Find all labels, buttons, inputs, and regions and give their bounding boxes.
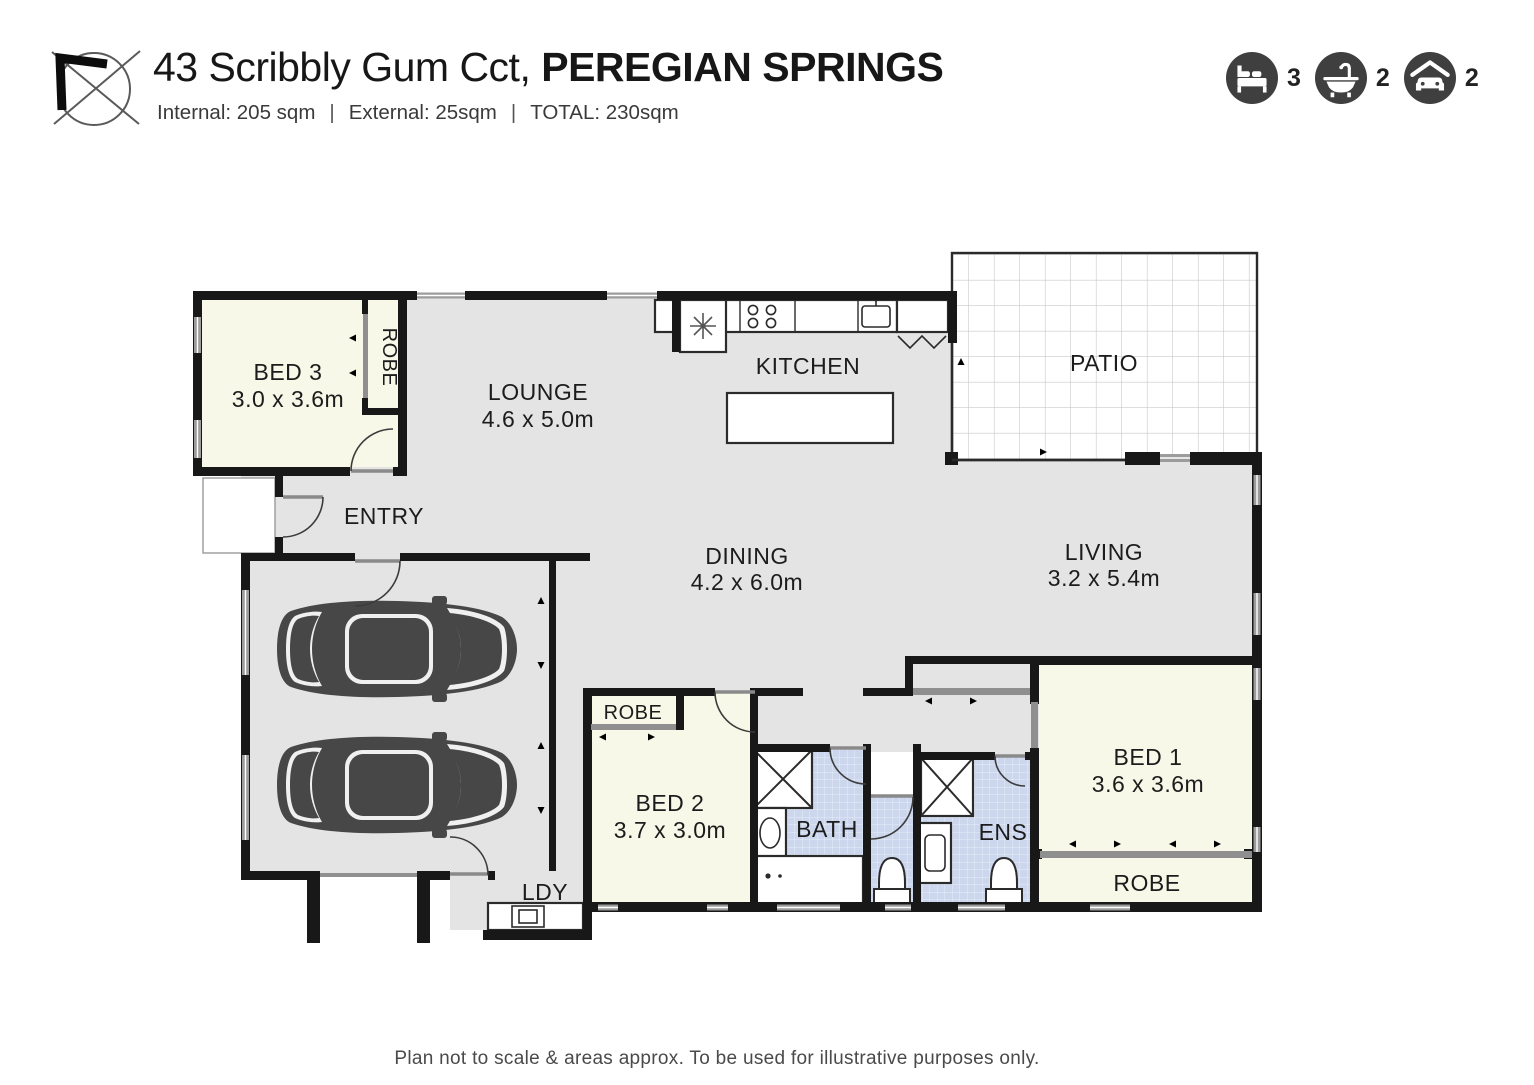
robe3-slider [363, 314, 368, 398]
entry-label: ENTRY [344, 503, 424, 529]
lounge-label: LOUNGE [488, 379, 588, 405]
robe2-slider [591, 724, 676, 730]
ens-vanity-icon [919, 823, 951, 883]
disclaimer-text: Plan not to scale & areas approx. To be … [0, 1048, 1434, 1070]
bed1-label: BED 1 [1114, 744, 1183, 770]
laundry-label: LDY [522, 879, 568, 905]
ens-label: ENS [979, 819, 1028, 845]
bathtub-icon [755, 856, 863, 904]
bath-shower-icon [754, 750, 812, 808]
lounge-dims: 4.6 x 5.0m [482, 406, 594, 432]
bed1-dims: 3.6 x 3.6m [1092, 771, 1204, 797]
floorplan-page: 43 Scribbly Gum Cct, PEREGIAN SPRINGS In… [0, 0, 1534, 1085]
garage-panel-door [320, 873, 417, 877]
car-2-icon [277, 732, 517, 838]
entry-porch [203, 478, 275, 553]
robe1-slider [1040, 851, 1252, 858]
kitchen-island [727, 393, 893, 443]
bath-label: BATH [796, 816, 858, 842]
hall-closet-slider [913, 688, 1030, 695]
pantry-fan-icon [680, 300, 726, 352]
bed3-label: BED 3 [254, 359, 323, 385]
bath-vanity-icon [754, 808, 786, 858]
dining-label: DINING [705, 543, 789, 569]
bed2-label: BED 2 [636, 790, 705, 816]
dining-dims: 4.2 x 6.0m [691, 569, 803, 595]
car-1-icon [277, 596, 517, 702]
robe2-label: ROBE [604, 702, 663, 724]
garage-door-porch [320, 880, 417, 940]
living-label: LIVING [1065, 539, 1143, 565]
bed1-cavity-slider [1031, 702, 1038, 748]
kitchen-label: KITCHEN [756, 353, 860, 379]
bed3-dims: 3.0 x 3.6m [232, 386, 344, 412]
robe3-label: ROBE [378, 328, 400, 387]
patio-label: PATIO [1070, 350, 1138, 376]
laundry-tub-icon [488, 903, 583, 930]
robe1-label: ROBE [1113, 870, 1180, 896]
bed2-dims: 3.7 x 3.0m [614, 817, 726, 843]
ens-shower-icon [921, 758, 973, 816]
servery-bench [897, 300, 948, 332]
living-dims: 3.2 x 5.4m [1048, 565, 1160, 591]
floor-plan: BED 3 3.0 x 3.6m ROBE LOUNGE 4.6 x 5.0m … [0, 0, 1534, 1085]
